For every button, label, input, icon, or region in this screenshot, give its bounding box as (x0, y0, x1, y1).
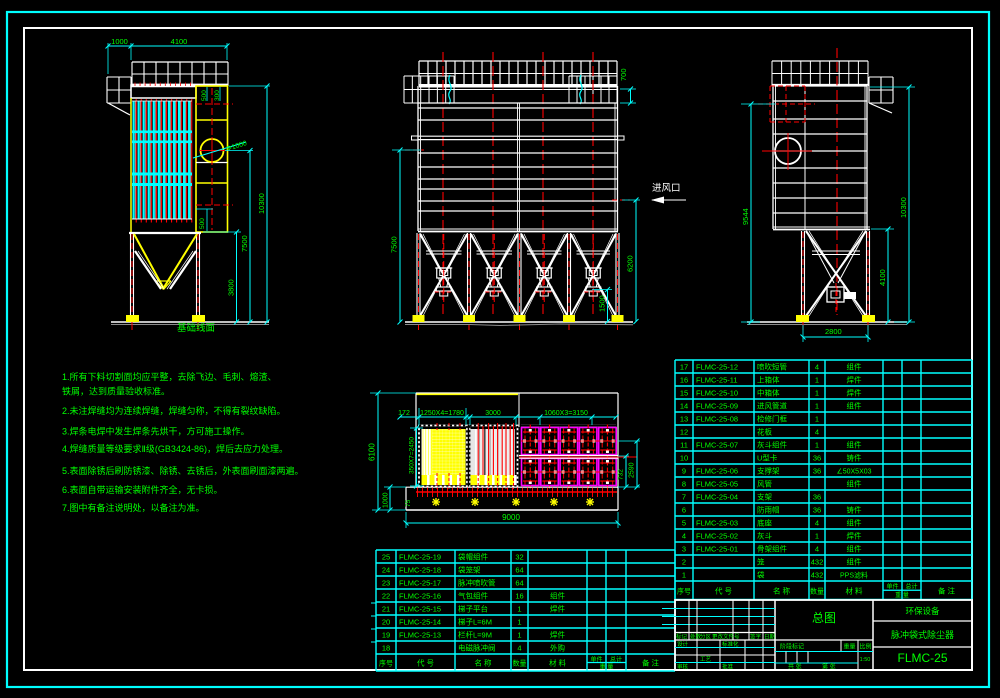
svg-text:4: 4 (815, 545, 819, 554)
svg-text:1.所有下料切割面均应平整，去除飞边、毛刺、熔渣、: 1.所有下料切割面均应平整，去除飞边、毛刺、熔渣、 (62, 371, 277, 382)
svg-text:标准化: 标准化 (722, 640, 739, 648)
svg-text:2: 2 (682, 558, 686, 567)
svg-text:11: 11 (680, 441, 688, 450)
svg-text:风管: 风管 (757, 479, 772, 489)
svg-text:8: 8 (682, 480, 686, 489)
svg-text:5: 5 (682, 519, 686, 528)
svg-text:3: 3 (682, 545, 686, 554)
svg-text:组件: 组件 (550, 591, 565, 601)
svg-text:1: 1 (517, 631, 521, 640)
svg-text:1060X3=3150: 1060X3=3150 (544, 410, 588, 417)
svg-text:432: 432 (811, 558, 824, 567)
svg-text:2590: 2590 (629, 462, 636, 478)
svg-text:更改文件号: 更改文件号 (712, 633, 740, 641)
svg-text:铸件: 铸件 (847, 505, 862, 515)
svg-text:500: 500 (199, 218, 206, 229)
svg-text:36: 36 (813, 467, 821, 476)
svg-text:FLMC-25-04: FLMC-25-04 (696, 493, 738, 502)
svg-text:FLMC-25-16: FLMC-25-16 (399, 592, 441, 601)
svg-text:灰斗: 灰斗 (757, 531, 772, 541)
svg-text:1: 1 (517, 605, 521, 614)
svg-text:2800: 2800 (825, 327, 842, 336)
svg-text:FLMC-25-06: FLMC-25-06 (696, 467, 738, 476)
svg-text:进风口: 进风口 (652, 183, 681, 194)
svg-text:工艺: 工艺 (700, 656, 712, 663)
svg-text:中箱体: 中箱体 (757, 388, 780, 398)
svg-text:10300: 10300 (257, 193, 266, 214)
svg-text:防雨帽: 防雨帽 (757, 505, 780, 515)
svg-text:重 量: 重 量 (600, 663, 614, 671)
svg-text:16: 16 (515, 592, 523, 601)
svg-text:36: 36 (813, 454, 821, 463)
svg-text:32: 32 (515, 553, 523, 562)
svg-text:FLMC-25-02: FLMC-25-02 (696, 532, 738, 541)
svg-text:签字: 签字 (750, 633, 762, 641)
svg-text:6.表面自带运输安装附件齐全，无卡损。: 6.表面自带运输安装附件齐全，无卡损。 (62, 484, 223, 495)
svg-text:重量: 重量 (843, 643, 855, 651)
svg-text:12: 12 (680, 428, 688, 437)
svg-text:数量: 数量 (513, 659, 527, 668)
svg-text:19: 19 (382, 631, 390, 640)
svg-text:1: 1 (815, 402, 819, 411)
svg-text:FLMC-25-05: FLMC-25-05 (696, 480, 738, 489)
svg-text:25: 25 (382, 553, 390, 562)
svg-text:组件: 组件 (847, 479, 862, 489)
svg-text:7500: 7500 (390, 236, 399, 253)
svg-text:焊件: 焊件 (847, 375, 862, 385)
svg-text:6200: 6200 (626, 255, 635, 272)
svg-text:18: 18 (382, 644, 390, 653)
svg-text:检修门框: 检修门框 (757, 414, 787, 424)
svg-text:名 称: 名 称 (773, 585, 791, 595)
svg-text:序号: 序号 (677, 586, 691, 595)
svg-text:焊件: 焊件 (550, 604, 565, 614)
svg-text:灰斗组件: 灰斗组件 (757, 440, 787, 450)
svg-text:1000: 1000 (111, 37, 128, 46)
svg-text:3000: 3000 (485, 410, 501, 417)
svg-text:阶段标记: 阶段标记 (780, 643, 804, 651)
svg-text:单件: 单件 (886, 583, 898, 591)
svg-text:1: 1 (517, 618, 521, 627)
svg-text:10300: 10300 (899, 197, 908, 218)
svg-text:5.表面除锈后刷防锈漆、除锈、去锈后，外表面刷面漆两遍。: 5.表面除锈后刷防锈漆、除锈、去锈后，外表面刷面漆两遍。 (62, 465, 304, 476)
svg-text:9000: 9000 (502, 513, 520, 522)
svg-text:4100: 4100 (171, 37, 188, 46)
svg-text:分区: 分区 (700, 633, 712, 641)
svg-text:9: 9 (682, 467, 686, 476)
svg-text:外购: 外购 (550, 643, 565, 653)
svg-text:36: 36 (813, 506, 821, 515)
svg-text:基础线面: 基础线面 (177, 322, 215, 334)
svg-text:支架: 支架 (757, 492, 772, 502)
svg-text:标记: 标记 (676, 633, 688, 641)
svg-text:电磁脉冲阀: 电磁脉冲阀 (458, 643, 496, 653)
svg-text:36: 36 (813, 493, 821, 502)
svg-text:U型卡: U型卡 (757, 453, 778, 463)
svg-text:1: 1 (815, 389, 819, 398)
svg-text:23: 23 (382, 579, 390, 588)
svg-text:FLMC-25-19: FLMC-25-19 (399, 553, 441, 562)
svg-text:焊件: 焊件 (847, 388, 862, 398)
svg-text:重 量: 重 量 (895, 591, 909, 599)
svg-text:名 称: 名 称 (474, 658, 492, 668)
svg-text:批准: 批准 (722, 663, 734, 671)
svg-text:序号: 序号 (379, 659, 393, 668)
svg-text:432: 432 (811, 571, 824, 580)
svg-text:FLMC-25-17: FLMC-25-17 (399, 579, 441, 588)
svg-text:FLMC-25-13: FLMC-25-13 (399, 631, 441, 640)
svg-text:3800: 3800 (227, 279, 236, 296)
svg-text:4100: 4100 (878, 269, 887, 286)
svg-text:6: 6 (682, 506, 686, 515)
svg-text:花板: 花板 (757, 427, 772, 437)
svg-text:1: 1 (682, 571, 686, 580)
svg-text:1: 1 (815, 532, 819, 541)
svg-text:3.焊条电焊中发生焊条先烘干，方可施工操作。: 3.焊条电焊中发生焊条先烘干，方可施工操作。 (62, 426, 250, 437)
svg-text:350X7=2450: 350X7=2450 (409, 437, 416, 474)
svg-text:组件: 组件 (847, 440, 862, 450)
svg-text:7.图中有备注说明处，以备注为准。: 7.图中有备注说明处，以备注为准。 (62, 502, 205, 513)
svg-text:代 号: 代 号 (417, 658, 434, 668)
svg-text:1000: 1000 (383, 492, 390, 508)
svg-text:FLMC-25-01: FLMC-25-01 (696, 545, 738, 554)
svg-text:64: 64 (515, 566, 523, 575)
svg-text:梯子平台: 梯子平台 (458, 604, 488, 614)
svg-text:732: 732 (618, 469, 625, 480)
svg-text:第 张: 第 张 (822, 663, 836, 671)
svg-text:共 张: 共 张 (788, 663, 802, 671)
svg-text:气包组件: 气包组件 (458, 591, 488, 601)
svg-text:组件: 组件 (847, 401, 862, 411)
svg-text:进风管道: 进风管道 (757, 401, 787, 411)
svg-text:焊件: 焊件 (847, 531, 862, 541)
svg-text:FLMC-25-12: FLMC-25-12 (696, 363, 738, 372)
svg-text:300: 300 (214, 90, 221, 101)
svg-text:代 号: 代 号 (715, 585, 732, 595)
svg-text:10: 10 (680, 454, 688, 463)
svg-text:1250X4=1780: 1250X4=1780 (420, 410, 464, 417)
svg-text:比例: 比例 (859, 643, 871, 651)
svg-text:17: 17 (680, 363, 688, 372)
svg-text:材 料: 材 料 (845, 585, 863, 595)
svg-text:审核: 审核 (677, 663, 689, 671)
svg-text:1500: 1500 (598, 295, 607, 312)
svg-text:6100: 6100 (368, 443, 377, 461)
svg-text:栏杆L=9M: 栏杆L=9M (458, 630, 492, 640)
svg-text:4: 4 (815, 428, 819, 437)
svg-text:∠50X5X03: ∠50X5X03 (836, 468, 871, 476)
svg-text:4.焊缝质量等级要求Ⅱ级(GB3424-86)，焊后去应力处: 4.焊缝质量等级要求Ⅱ级(GB3424-86)，焊后去应力处理。 (62, 443, 288, 454)
svg-text:13: 13 (680, 415, 688, 424)
svg-text:笼: 笼 (757, 557, 765, 567)
svg-text:数量: 数量 (810, 586, 824, 595)
svg-text:喷吹短管: 喷吹短管 (757, 362, 787, 372)
svg-text:组件: 组件 (847, 518, 862, 528)
svg-text:备 注: 备 注 (642, 658, 660, 668)
svg-text:1: 1 (815, 376, 819, 385)
svg-text:总图: 总图 (812, 611, 836, 625)
svg-text:7: 7 (682, 493, 686, 502)
svg-text:组件: 组件 (847, 544, 862, 554)
svg-text:底座: 底座 (757, 518, 772, 528)
svg-text:FLMC-25-18: FLMC-25-18 (399, 566, 441, 575)
svg-text:组件: 组件 (847, 557, 862, 567)
svg-text:4: 4 (682, 532, 686, 541)
svg-text:支撑架: 支撑架 (757, 466, 780, 476)
svg-text:脉冲袋式除尘器: 脉冲袋式除尘器 (891, 629, 954, 640)
svg-text:1: 1 (815, 415, 819, 424)
svg-text:700: 700 (619, 68, 628, 81)
svg-text:FLMC-25-07: FLMC-25-07 (696, 441, 738, 450)
svg-text:1:50: 1:50 (860, 657, 871, 663)
svg-text:骨架组件: 骨架组件 (757, 544, 787, 554)
svg-text:袋笼架: 袋笼架 (458, 565, 481, 575)
svg-text:FLMC-25-11: FLMC-25-11 (696, 376, 738, 385)
svg-text:FLMC-25-14: FLMC-25-14 (399, 618, 441, 627)
svg-text:9544: 9544 (741, 208, 750, 225)
svg-text:14: 14 (680, 402, 688, 411)
svg-text:FLMC-25-09: FLMC-25-09 (696, 402, 738, 411)
svg-text:组件: 组件 (847, 362, 862, 372)
svg-text:75: 75 (405, 499, 412, 507)
svg-text:备 注: 备 注 (938, 585, 956, 595)
svg-text:2.未注焊缝均为连续焊缝，焊缝匀称，不得有裂纹缺陷。: 2.未注焊缝均为连续焊缝，焊缝匀称，不得有裂纹缺陷。 (62, 405, 286, 416)
svg-text:PPS滤料: PPS滤料 (840, 571, 868, 580)
svg-text:64: 64 (515, 579, 523, 588)
svg-text:24: 24 (382, 566, 390, 575)
svg-text:环保设备: 环保设备 (905, 606, 940, 616)
svg-text:1: 1 (815, 441, 819, 450)
svg-text:FLMC-25-15: FLMC-25-15 (399, 605, 441, 614)
svg-text:22: 22 (382, 592, 390, 601)
svg-text:焊件: 焊件 (550, 630, 565, 640)
svg-text:铁屑，达到质量验收标准。: 铁屑，达到质量验收标准。 (62, 386, 170, 397)
svg-text:材 料: 材 料 (549, 658, 567, 668)
svg-text:总计: 总计 (905, 583, 917, 591)
svg-text:FLMC-25-10: FLMC-25-10 (696, 389, 738, 398)
svg-text:7500: 7500 (240, 235, 249, 252)
svg-text:铸件: 铸件 (847, 453, 862, 463)
svg-text:袋帽组件: 袋帽组件 (458, 552, 488, 562)
svg-text:21: 21 (382, 605, 390, 614)
svg-text:16: 16 (680, 376, 688, 385)
svg-text:4: 4 (517, 644, 521, 653)
svg-text:梯子L=6M: 梯子L=6M (458, 617, 492, 627)
svg-text:500: 500 (201, 90, 208, 101)
svg-text:袋: 袋 (757, 570, 765, 580)
svg-text:FLMC-25: FLMC-25 (897, 651, 947, 665)
svg-text:172: 172 (398, 410, 410, 417)
svg-text:15: 15 (680, 389, 688, 398)
svg-text:FLMC-25-03: FLMC-25-03 (696, 519, 738, 528)
svg-text:20: 20 (382, 618, 390, 627)
svg-text:4: 4 (815, 519, 819, 528)
svg-text:4: 4 (815, 363, 819, 372)
svg-text:FLMC-25-08: FLMC-25-08 (696, 415, 738, 424)
svg-text:上箱体: 上箱体 (757, 375, 780, 385)
svg-text:设计: 设计 (677, 640, 689, 648)
svg-text:脉冲喷吹管: 脉冲喷吹管 (458, 578, 496, 588)
